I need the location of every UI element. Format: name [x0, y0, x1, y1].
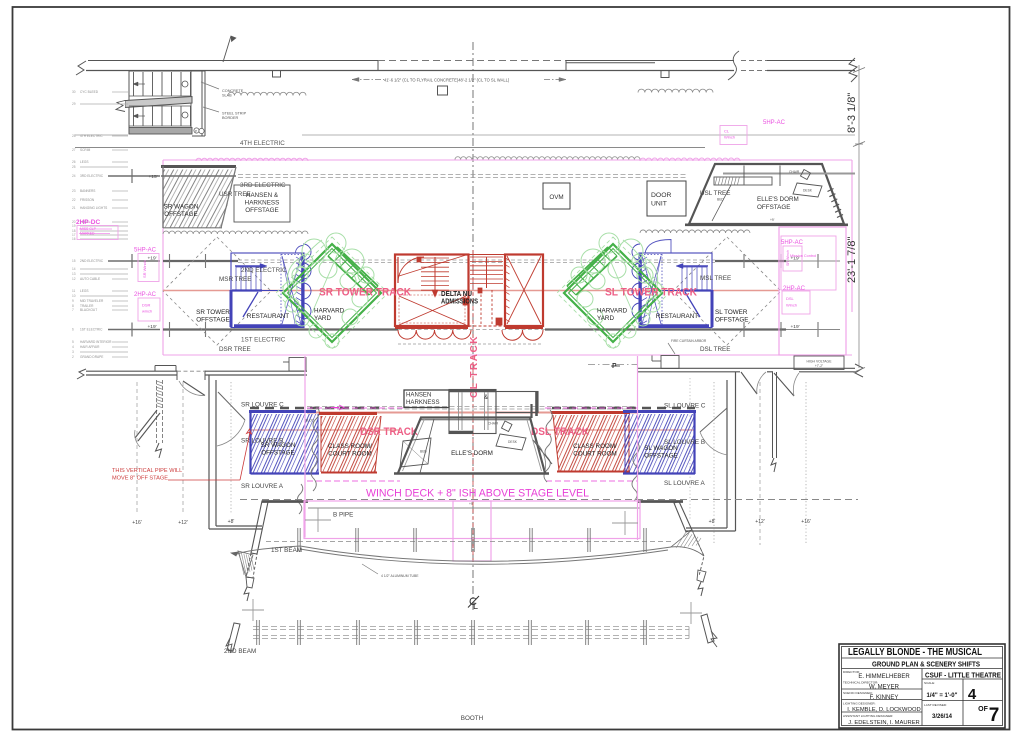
svg-text:2HP-AC: 2HP-AC	[134, 292, 157, 298]
svg-text:2HP-DC: 2HP-DC	[76, 219, 101, 226]
svg-text:+16': +16'	[132, 520, 141, 526]
svg-text:SR LOUVRE C: SR LOUVRE C	[241, 402, 284, 409]
svg-text:SR LOUVRE A: SR LOUVRE A	[241, 483, 284, 490]
svg-text:CHAIR: CHAIR	[488, 422, 499, 426]
svg-text:+8': +8'	[709, 519, 716, 525]
svg-text:YARD: YARD	[597, 315, 614, 322]
svg-text:ASSISTANT LIGHTING DESIGNER:: ASSISTANT LIGHTING DESIGNER:	[843, 714, 893, 718]
svg-text:COURT ROOM: COURT ROOM	[573, 451, 617, 458]
svg-text:+7'-2": +7'-2"	[815, 364, 823, 368]
svg-text:THIS VERTICAL PIPE WILL: THIS VERTICAL PIPE WILL	[112, 468, 182, 474]
svg-text:HIGH VOLTAGE: HIGH VOLTAGE	[807, 360, 833, 364]
svg-text:+8': +8'	[228, 519, 235, 525]
svg-text:7: 7	[989, 705, 1000, 726]
svg-text:OFFSTAGE: OFFSTAGE	[757, 204, 790, 211]
svg-text:WINCH DECK + 8" ISH ABOVE STA: WINCH DECK + 8" ISH ABOVE STAGE LEVEL	[366, 488, 589, 500]
svg-text:P: P	[612, 363, 617, 370]
svg-text:OFFSTAGE: OFFSTAGE	[644, 453, 677, 460]
svg-text:1ST ELECTRIC: 1ST ELECTRIC	[241, 337, 286, 344]
svg-text:HARVARD: HARVARD	[314, 308, 345, 315]
svg-text:2ND ELECTRIC: 2ND ELECTRIC	[241, 267, 287, 274]
svg-text:41'-6 1/2" (CL TO FLYRAIL CONC: 41'-6 1/2" (CL TO FLYRAIL CONCRETE)48'-2…	[384, 78, 510, 83]
svg-text:13: 13	[72, 272, 76, 276]
svg-text:+16': +16'	[801, 519, 810, 525]
svg-text:16: 16	[72, 237, 76, 241]
svg-text:OFFSTAGE: OFFSTAGE	[164, 211, 197, 218]
svg-text:8'-3 1/8": 8'-3 1/8"	[846, 93, 858, 133]
svg-text:4: 4	[968, 686, 977, 703]
svg-text:Mission Control: Mission Control	[790, 254, 816, 258]
svg-text:30: 30	[72, 90, 76, 94]
svg-text:HARKNESS: HARKNESS	[245, 200, 280, 207]
svg-text:E. HIMMELHEBER: E. HIMMELHEBER	[858, 674, 910, 680]
svg-text:+19': +19'	[790, 324, 799, 330]
svg-text:21: 21	[72, 206, 76, 210]
svg-text:DSR TRACK: DSR TRACK	[360, 426, 418, 438]
svg-text:9: 9	[72, 299, 74, 303]
svg-text:HARVARD INTERIOR: HARVARD INTERIOR	[80, 340, 112, 344]
svg-text:6: 6	[72, 328, 74, 332]
svg-text:+12': +12'	[178, 520, 187, 526]
svg-text:DSL TRACK: DSL TRACK	[531, 426, 589, 438]
svg-text:W. MEYER: W. MEYER	[869, 685, 900, 691]
svg-text:OVM: OVM	[549, 194, 563, 201]
svg-text:ELLE'S DORM: ELLE'S DORM	[757, 196, 799, 203]
svg-text:3RD ELECTRIC: 3RD ELECTRIC	[80, 174, 104, 178]
svg-text:23: 23	[72, 189, 76, 193]
svg-text:HARKNESS: HARKNESS	[406, 399, 440, 406]
svg-text:F. KINNEY: F. KINNEY	[870, 695, 899, 701]
svg-text:MOVE 8" OFF STAGE: MOVE 8" OFF STAGE	[112, 476, 168, 482]
svg-text:CL TRACK: CL TRACK	[469, 335, 480, 398]
svg-text:SR TOWER: SR TOWER	[196, 309, 230, 316]
svg-text:27: 27	[72, 148, 76, 152]
svg-text:1ST ELECTRIC: 1ST ELECTRIC	[80, 328, 103, 332]
svg-text:BORDER: BORDER	[222, 116, 239, 120]
svg-text:HANSEN: HANSEN	[406, 392, 431, 399]
svg-text:DSR TREE: DSR TREE	[219, 346, 251, 353]
svg-text:+9': +9'	[770, 218, 775, 222]
svg-text:HARVARD: HARVARD	[597, 308, 628, 315]
svg-text:OFFSTAGE: OFFSTAGE	[196, 317, 229, 324]
svg-text:LEGS: LEGS	[80, 289, 89, 293]
svg-text:OF: OF	[978, 706, 988, 713]
svg-text:BANNERS: BANNERS	[80, 189, 95, 193]
svg-text:CL: CL	[724, 129, 730, 134]
svg-text:CHAIR: CHAIR	[789, 170, 800, 174]
svg-text:CSUF - LITTLE THEATRE: CSUF - LITTLE THEATRE	[925, 671, 1001, 680]
svg-text:B PIPE: B PIPE	[333, 512, 353, 519]
svg-text:5HP-AC: 5HP-AC	[781, 240, 804, 246]
svg-text:MSR TREE: MSR TREE	[219, 276, 251, 283]
svg-text:FRISSON: FRISSON	[80, 198, 95, 202]
svg-text:25: 25	[72, 165, 76, 169]
svg-text:GROUND PLAN & SCENERY SHIFTS: GROUND PLAN & SCENERY SHIFTS	[872, 660, 980, 669]
svg-text:RESTAURANT: RESTAURANT	[656, 313, 698, 320]
svg-text:7: 7	[72, 308, 74, 312]
svg-text:LEGALLY BLONDE - THE MUSICAL: LEGALLY BLONDE - THE MUSICAL	[848, 647, 982, 658]
svg-text:3: 3	[72, 350, 74, 354]
svg-text:winch: winch	[142, 309, 152, 314]
svg-text:LAST REVISED:: LAST REVISED:	[924, 703, 947, 707]
svg-text:+9': +9'	[469, 502, 474, 506]
svg-text:SL LOUVRE B: SL LOUVRE B	[664, 439, 705, 446]
svg-text:USL TREE: USL TREE	[700, 190, 730, 197]
svg-text:2ND BEAM: 2ND BEAM	[224, 648, 256, 655]
svg-text:2ND ELECTRIC: 2ND ELECTRIC	[80, 259, 104, 263]
svg-text:SCRIM: SCRIM	[80, 148, 91, 152]
svg-text:HANGING LIGHTS: HANGING LIGHTS	[80, 206, 107, 210]
svg-text:ADMISSIONS: ADMISSIONS	[441, 299, 478, 306]
svg-text:STEEL STRIP: STEEL STRIP	[222, 112, 247, 116]
svg-text:OFFSTAGE: OFFSTAGE	[715, 317, 748, 324]
svg-text:SL LOUVRE C: SL LOUVRE C	[664, 403, 706, 410]
svg-text:15: 15	[72, 259, 76, 263]
svg-text:26: 26	[72, 160, 76, 164]
svg-text:BLACKOUT: BLACKOUT	[80, 308, 97, 312]
svg-text:DOOR: DOOR	[651, 192, 671, 199]
svg-text:MID TRAVELER: MID TRAVELER	[80, 299, 104, 303]
svg-text:J. EDELSTEIN, I. MAURER: J. EDELSTEIN, I. MAURER	[848, 720, 920, 726]
svg-text:GRAND DRAPE: GRAND DRAPE	[80, 355, 103, 359]
svg-text:1ST BEAM: 1ST BEAM	[271, 547, 302, 554]
svg-text:SR TOWER TRACK: SR TOWER TRACK	[319, 287, 411, 299]
svg-text:SR WAGON: SR WAGON	[164, 204, 199, 211]
svg-text:AUTO CABLE: AUTO CABLE	[80, 277, 100, 281]
svg-text:SL TOWER TRACK: SL TOWER TRACK	[605, 287, 697, 299]
svg-text:COURT ROOM: COURT ROOM	[328, 451, 372, 458]
svg-text:OFFSTAGE: OFFSTAGE	[245, 207, 278, 214]
svg-text:DELTA NU: DELTA NU	[441, 291, 472, 298]
svg-text:SCENIC DESIGNER:: SCENIC DESIGNER:	[843, 691, 873, 695]
svg-text:BED: BED	[420, 450, 427, 454]
svg-text:LEGS: LEGS	[80, 160, 89, 164]
svg-text:29: 29	[72, 102, 76, 106]
svg-text:12: 12	[72, 277, 76, 281]
svg-text:11: 11	[72, 289, 76, 293]
svg-text:10: 10	[72, 294, 76, 298]
svg-text:BOOTH: BOOTH	[461, 715, 484, 722]
svg-text:HAIR AFFAIR: HAIR AFFAIR	[80, 345, 100, 349]
svg-text:+19': +19'	[147, 324, 156, 330]
svg-text:HANSEN &: HANSEN &	[246, 192, 279, 199]
svg-text:SL TOWER: SL TOWER	[715, 309, 748, 316]
svg-text:23'-1 7/8": 23'-1 7/8"	[846, 237, 858, 283]
svg-text:SCALE:: SCALE:	[924, 681, 935, 685]
svg-text:Winch: Winch	[724, 135, 735, 140]
svg-text:DSL TREE: DSL TREE	[700, 346, 730, 353]
svg-text:L: L	[473, 601, 478, 611]
svg-text:DSR: DSR	[142, 303, 151, 308]
svg-text:24: 24	[72, 174, 76, 178]
svg-text:SL LOUVRE A: SL LOUVRE A	[664, 480, 706, 487]
svg-text:BED: BED	[717, 198, 724, 202]
svg-text:3/26/14: 3/26/14	[932, 714, 953, 720]
svg-text:&: &	[484, 395, 488, 401]
svg-text:DSL: DSL	[786, 296, 795, 301]
svg-text:Winch: Winch	[786, 303, 797, 308]
svg-text:SR Winch: SR Winch	[786, 250, 790, 266]
svg-text:LIGHTING DESIGNER:: LIGHTING DESIGNER:	[843, 702, 876, 706]
svg-text:CYC BLEED: CYC BLEED	[80, 90, 99, 94]
svg-text:CLASS ROOM/: CLASS ROOM/	[328, 443, 372, 450]
svg-text:RESTAURANT: RESTAURANT	[247, 313, 289, 320]
svg-text:+19': +19'	[147, 256, 156, 262]
svg-text:4TH ELECTRIC: 4TH ELECTRIC	[240, 140, 285, 147]
svg-text:SR Winch: SR Winch	[142, 260, 147, 278]
svg-text:4: 4	[72, 345, 74, 349]
svg-text:DESK: DESK	[803, 189, 813, 193]
svg-text:+15': +15'	[148, 174, 157, 180]
svg-text:1/4" = 1'-0": 1/4" = 1'-0"	[927, 693, 958, 699]
svg-text:3RD ELECTRIC: 3RD ELECTRIC	[240, 182, 286, 189]
svg-text:+12': +12'	[755, 519, 764, 525]
svg-text:OFFSTAGE: OFFSTAGE	[261, 450, 294, 457]
svg-text:2: 2	[72, 355, 74, 359]
svg-text:MSL TREE: MSL TREE	[700, 275, 731, 282]
svg-text:ELLE'S DORM: ELLE'S DORM	[451, 450, 493, 457]
svg-text:14: 14	[72, 267, 76, 271]
svg-text:YARD: YARD	[314, 315, 331, 322]
svg-text:I. KEMBLE, D. LOCKWOOD: I. KEMBLE, D. LOCKWOOD	[847, 707, 920, 713]
svg-text:5: 5	[72, 340, 74, 344]
svg-text:UNIT: UNIT	[651, 201, 667, 208]
svg-text:SLAB: SLAB	[222, 94, 232, 98]
svg-text:5HP-AC: 5HP-AC	[763, 120, 786, 126]
svg-text:DESK: DESK	[508, 440, 518, 444]
svg-text:22: 22	[72, 198, 76, 202]
svg-text:FIRE CURTAIN ARBOR: FIRE CURTAIN ARBOR	[671, 339, 707, 343]
svg-text:SL WAGON: SL WAGON	[644, 445, 678, 452]
svg-text:5HP-AC: 5HP-AC	[134, 248, 157, 254]
svg-text:CLASS ROOM/: CLASS ROOM/	[573, 443, 617, 450]
svg-text:4 1/2" ALUMINUM TUBE: 4 1/2" ALUMINUM TUBE	[381, 574, 419, 578]
